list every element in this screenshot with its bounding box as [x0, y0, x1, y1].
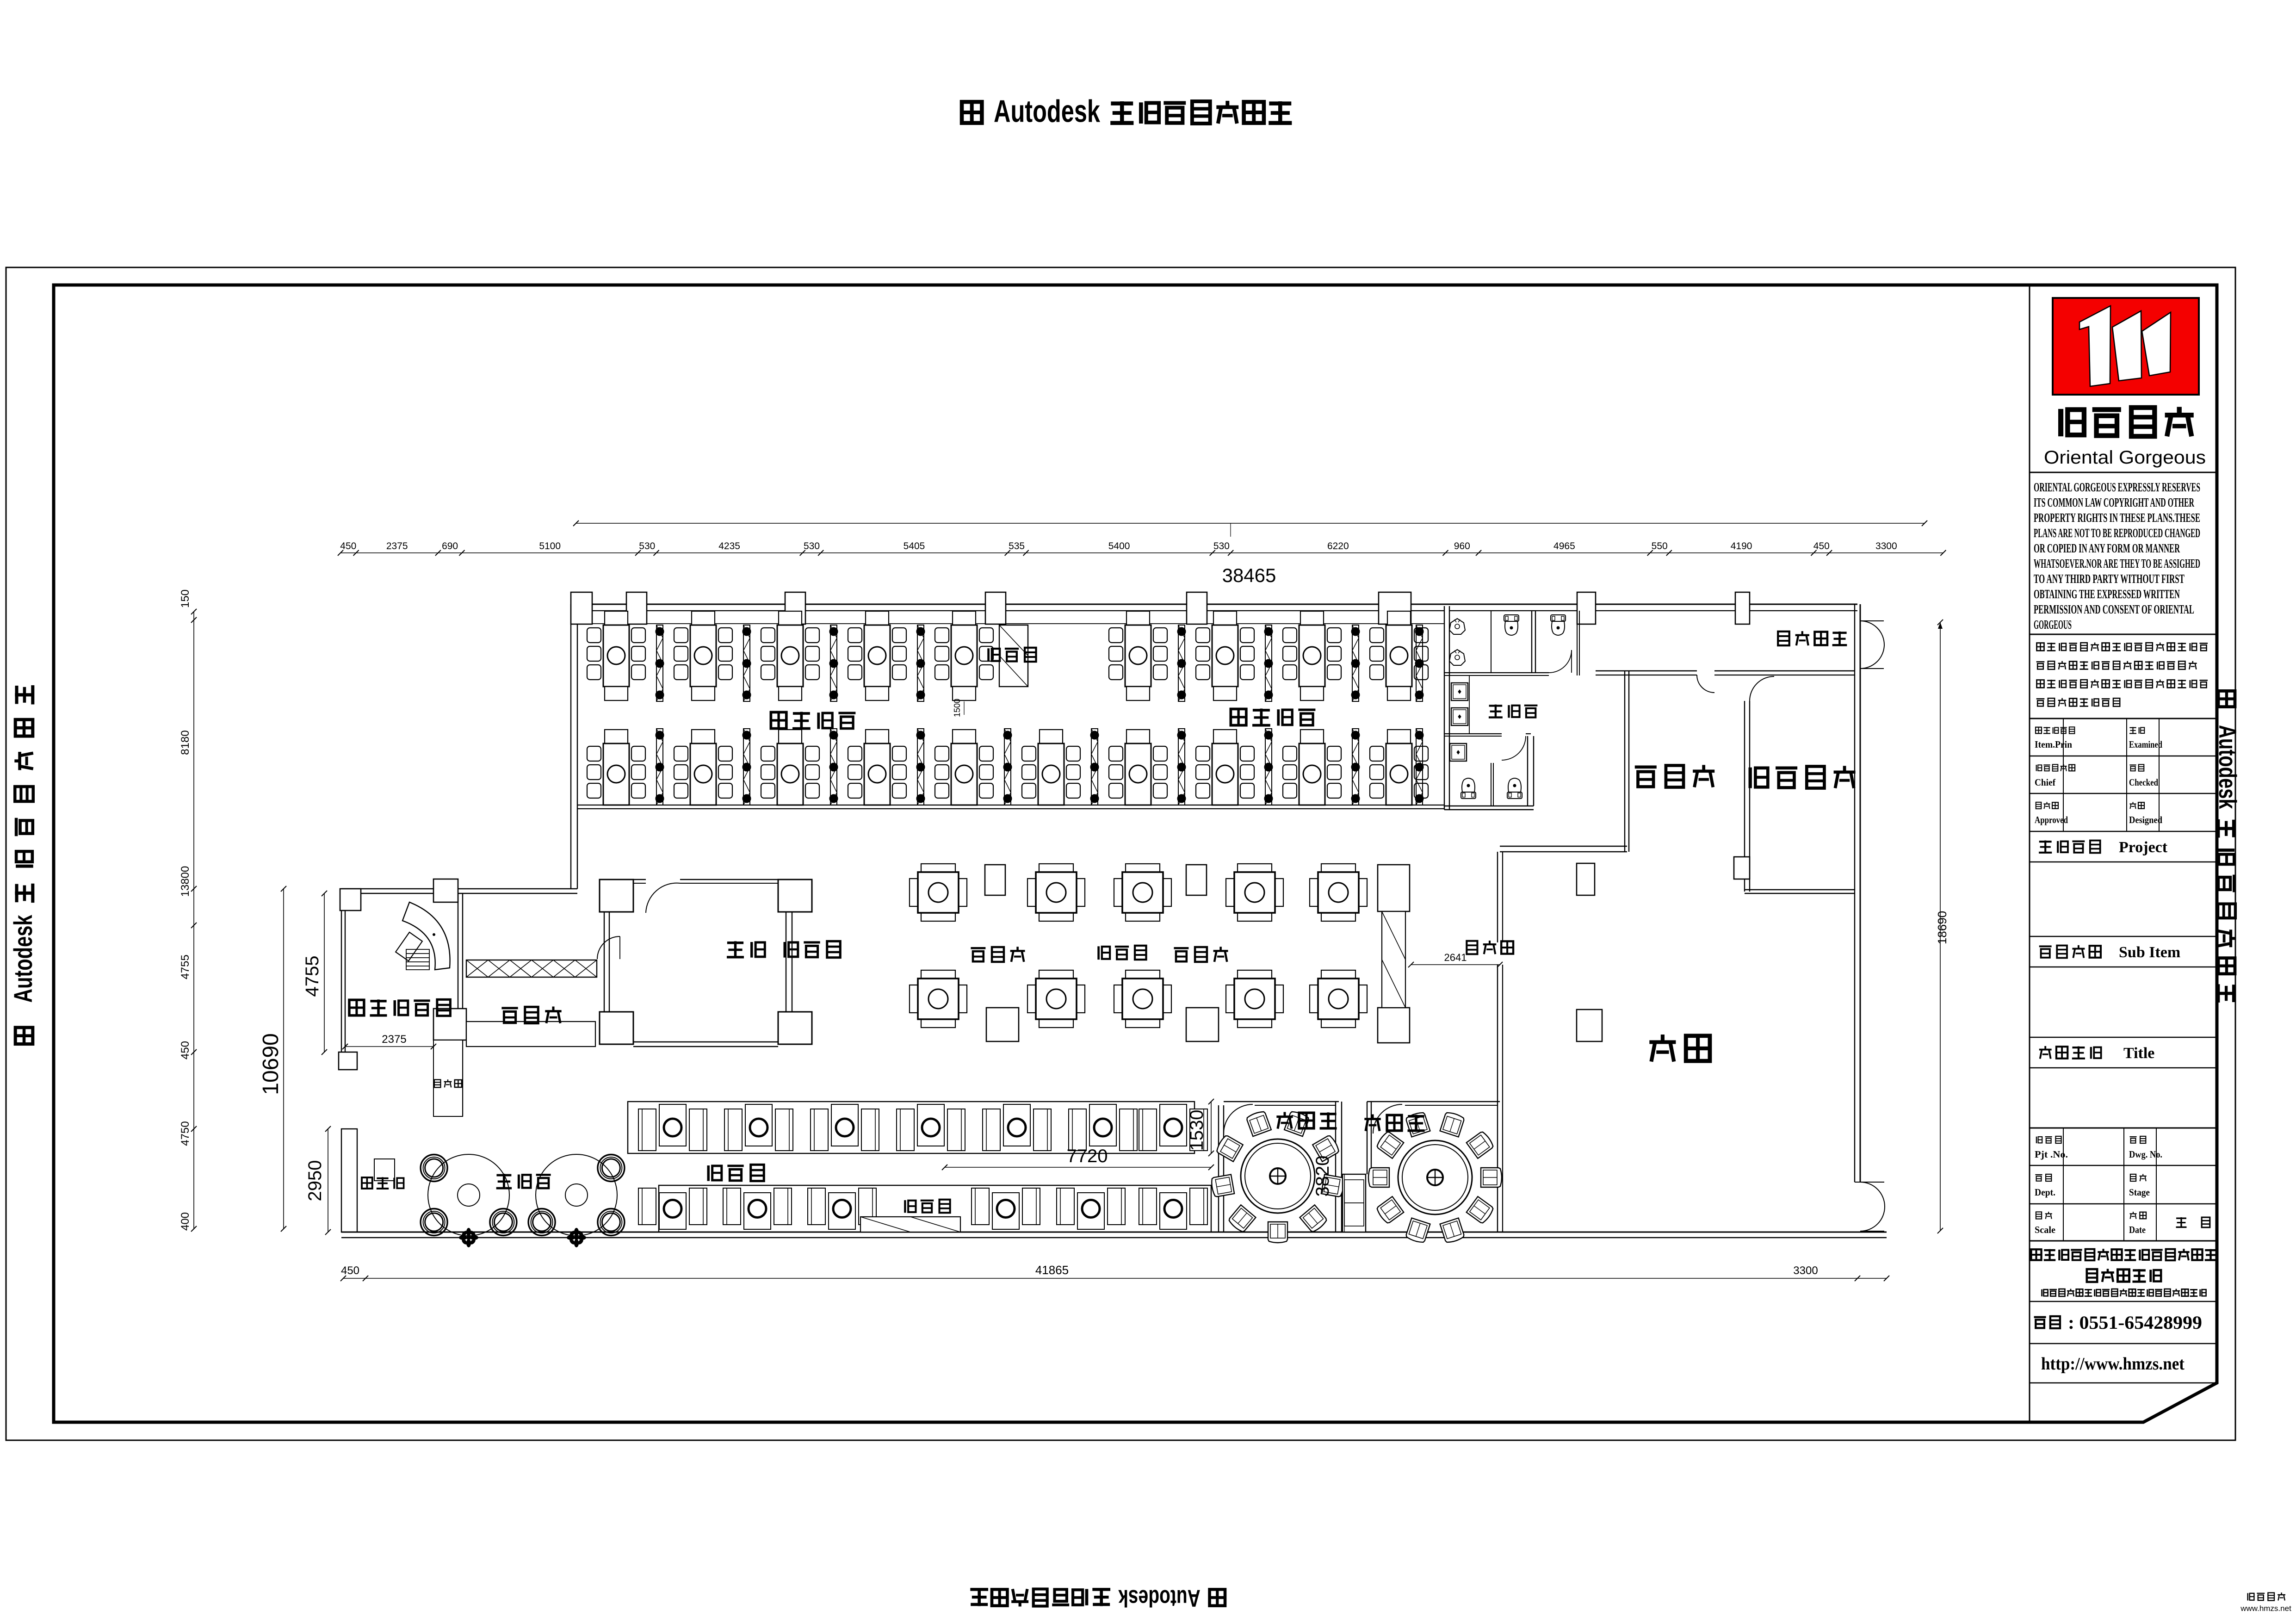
svg-text:3820: 3820 — [1312, 1156, 1333, 1197]
svg-text:450: 450 — [179, 1041, 192, 1059]
svg-text:PROPERTY RIGHTS IN THESE PLANS: PROPERTY RIGHTS IN THESE PLANS.THESE — [2034, 511, 2200, 525]
svg-text:Examined: Examined — [2129, 739, 2162, 750]
svg-text:Dwg. No.: Dwg. No. — [2129, 1149, 2162, 1160]
svg-text:535: 535 — [1009, 541, 1025, 551]
svg-text:450: 450 — [340, 541, 356, 551]
svg-text:Autodesk: Autodesk — [994, 94, 1100, 129]
svg-text:Chief: Chief — [2035, 777, 2056, 788]
svg-text:OR COPIED IN ANY FORM OR MANNE: OR COPIED IN ANY FORM OR MANNER — [2034, 541, 2180, 555]
svg-text:Checked: Checked — [2129, 777, 2158, 788]
svg-text:3300: 3300 — [1793, 1264, 1818, 1277]
svg-text:6220: 6220 — [1327, 541, 1349, 551]
svg-text:Sub Item: Sub Item — [2119, 944, 2180, 961]
svg-text:10690: 10690 — [259, 1033, 283, 1095]
svg-text:: 0551-65428999: : 0551-65428999 — [2068, 1312, 2202, 1333]
svg-text:550: 550 — [1652, 541, 1668, 551]
svg-text:Title: Title — [2123, 1045, 2154, 1062]
svg-text:690: 690 — [442, 541, 458, 551]
svg-text:WHATSOEVER.NOR ARE THEY TO BE: WHATSOEVER.NOR ARE THEY TO BE ASSIGHED — [2034, 557, 2200, 570]
svg-text:960: 960 — [1454, 541, 1470, 551]
svg-text:OBTAINING THE EXPRESSED WRITTE: OBTAINING THE EXPRESSED WRITTEN — [2034, 587, 2180, 601]
svg-text:5405: 5405 — [904, 541, 925, 551]
svg-text:4190: 4190 — [1731, 541, 1752, 551]
svg-text:Autodesk: Autodesk — [9, 915, 37, 1003]
svg-text:PLANS ARE NOT TO BE REPRODUCED: PLANS ARE NOT TO BE REPRODUCED CHANGED — [2034, 526, 2200, 540]
svg-text:www.hmzs.net: www.hmzs.net — [2240, 1604, 2291, 1613]
svg-text:PERMISSION AND CONSENT OF ORIE: PERMISSION AND CONSENT OF ORIENTAL — [2034, 602, 2194, 616]
svg-text:Dept.: Dept. — [2035, 1187, 2055, 1198]
svg-text:ITS COMMON LAW COPYRIGHT AND O: ITS COMMON LAW COPYRIGHT AND OTHER — [2034, 496, 2194, 509]
svg-text:4755: 4755 — [302, 956, 322, 997]
svg-text:4750: 4750 — [179, 1121, 192, 1146]
svg-text:http://www.hmzs.net: http://www.hmzs.net — [2041, 1354, 2185, 1374]
svg-text:5400: 5400 — [1108, 541, 1130, 551]
svg-text:13800: 13800 — [179, 866, 192, 897]
svg-text:530: 530 — [804, 541, 820, 551]
svg-text:Item.Prin: Item.Prin — [2035, 739, 2072, 750]
svg-text:4235: 4235 — [718, 541, 740, 551]
svg-text:Oriental Gorgeous: Oriental Gorgeous — [2044, 447, 2206, 468]
svg-text:TO ANY THIRD PARTY WITHOUT FIR: TO ANY THIRD PARTY WITHOUT FIRST — [2034, 572, 2185, 586]
svg-text:2375: 2375 — [382, 1033, 406, 1046]
svg-text:400: 400 — [179, 1212, 192, 1231]
svg-text:5100: 5100 — [539, 541, 561, 551]
svg-text:2375: 2375 — [386, 541, 408, 551]
svg-text:150: 150 — [179, 589, 192, 608]
svg-text:Project: Project — [2119, 839, 2168, 856]
svg-text:450: 450 — [1813, 541, 1830, 551]
svg-text:18690: 18690 — [1935, 911, 1949, 944]
svg-text:530: 530 — [639, 541, 655, 551]
svg-text:GORGEOUS: GORGEOUS — [2034, 618, 2072, 632]
svg-text:Date: Date — [2129, 1224, 2146, 1235]
svg-text:1500: 1500 — [953, 699, 962, 717]
svg-text:450: 450 — [341, 1264, 359, 1277]
svg-text:Autodesk: Autodesk — [1118, 1585, 1201, 1612]
svg-text:38465: 38465 — [1222, 564, 1276, 586]
svg-text:2641: 2641 — [1444, 952, 1467, 963]
svg-text:Designed: Designed — [2129, 814, 2162, 825]
svg-text:4755: 4755 — [179, 954, 192, 979]
svg-text:41865: 41865 — [1035, 1263, 1069, 1277]
svg-text:8180: 8180 — [179, 730, 192, 755]
svg-text:7720: 7720 — [1067, 1146, 1108, 1166]
svg-text:ORIENTAL GORGEOUS EXPRESSLY RE: ORIENTAL GORGEOUS EXPRESSLY RESERVES — [2034, 480, 2200, 494]
svg-text:Stage: Stage — [2129, 1187, 2150, 1198]
svg-text:Autodesk: Autodesk — [2214, 725, 2241, 809]
svg-text:4965: 4965 — [1553, 541, 1575, 551]
svg-text:3300: 3300 — [1875, 541, 1897, 551]
svg-text:530: 530 — [1213, 541, 1230, 551]
svg-text:2950: 2950 — [305, 1160, 325, 1202]
svg-text:1530: 1530 — [1187, 1110, 1207, 1151]
svg-text:Scale: Scale — [2035, 1224, 2055, 1235]
